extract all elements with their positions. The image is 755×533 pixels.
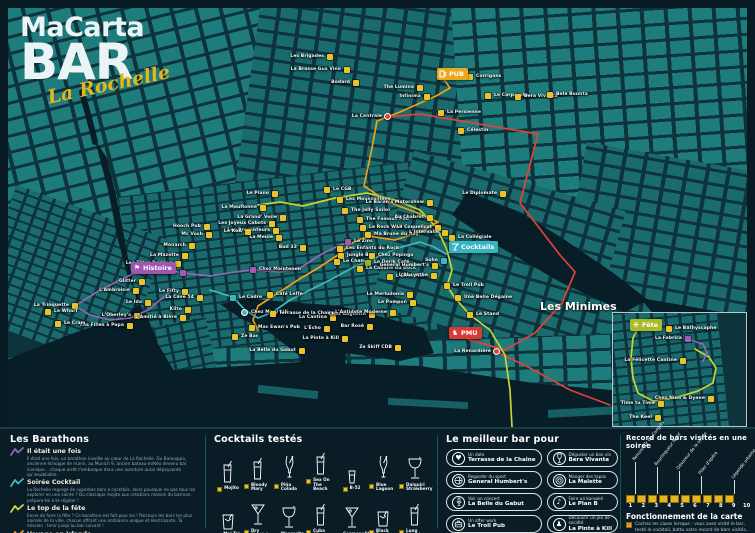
bar-dot [427,200,433,206]
bar-label: Chez Popingo [378,253,414,258]
best-bar-title: Le meilleur bar pour [446,434,614,445]
bar-label: Les Enfants du Rock [346,246,399,251]
record-checkbox[interactable] [725,495,734,503]
coupe-glass-icon [407,457,423,481]
bar-dot [369,253,375,259]
bar-label: Les Brigades [290,54,324,59]
bar-dot [206,232,212,238]
best-bar-text: Faire un karaokéLe Plan B [569,497,604,508]
route-badge-cocktails: Cocktails [449,241,498,253]
bar-label: The Jolly Sailor [351,208,391,213]
bar-label: La Cantina [299,315,327,320]
martini-glass-icon [344,506,360,530]
bar-label: Le CGB [333,187,352,192]
best-bar-item: Un after workLe Troll Pub [446,515,542,533]
bar-label: Le KoA [224,229,242,234]
bar-dot [345,239,351,245]
cocktail-name-row: Piña Colada [274,483,304,492]
martini-glass-icon [250,503,266,527]
cocktails-title: Cocktails testés [214,434,430,445]
bar-dot [241,309,248,316]
cocktails-panel: Cocktails testés MojitoBloody MaryPiña C… [208,429,436,533]
record-checkbox[interactable] [626,495,635,503]
bar-label: La Belle du Gabut [249,348,296,353]
bar-label: Le Cadre [239,295,262,300]
bar-label: Le Fifty [159,289,179,294]
best-bar-panel: Le meilleur bar pour ♥Un dateTerrasse de… [440,429,620,533]
how-to-section: Fonctionnement de la carte ✓ Cochez les … [626,512,753,533]
cocktail-name: B-52 [350,486,361,491]
best-bar-grid: ♥Un dateTerrasse de la ChaîneDéguster un… [446,449,614,533]
bar-label: Le Corporate [494,93,528,98]
cocktail-name-row: Dry Martini [244,529,272,533]
route-badge-histoire: ⚑Histoire [131,262,176,274]
bar-dot [133,288,139,294]
bar-label: La Grand' Voile [237,215,277,220]
bar-dot [417,85,423,91]
bar-label: L'Écho [304,326,321,331]
bar-dot [230,295,236,301]
bar-dot [680,358,686,364]
cocktail-name-row: Black Russian [369,529,397,533]
barathons-title: Les Barathons [10,434,198,445]
bar-label: Le Cram [64,321,85,326]
bar-label: Café Leffe [276,292,303,297]
bar-dot [432,263,438,269]
record-number: 1 [626,503,635,509]
bar-label: Le Baron's Motorshow [366,200,424,205]
bar-dot [250,267,256,273]
bar-dot [444,283,450,289]
bar-dot [185,307,191,313]
bar-dot [232,334,238,340]
barathon-head: Le top de la fête [10,504,198,513]
cocktail-item: Mojito [214,448,242,492]
barathons-panel: Les Barathons Il était une foisIl était … [4,429,204,533]
best-bar-name: La Pinte à Kill [569,526,613,532]
barathon-description: La Rochelle regorge de superbes bars à c… [27,487,198,503]
best-bar-text: Déguster un bon vinBera Vivanta [569,453,612,464]
cocktail-name: Mojito [224,486,239,491]
tier-tick [701,476,702,495]
bar-dot [410,300,416,306]
record-number: 4 [665,503,674,509]
bar-label: Les Joyeux Cabots [218,221,266,226]
barathon-name: Il était une fois [27,448,81,455]
cocktail-name-row: Long Island [399,529,430,533]
badge-label: PUB [449,70,464,78]
bar-label: L'Oberley's [102,313,131,318]
inset-title: Les Minimes [540,300,617,313]
bar-dot [547,92,553,98]
best-bar-item: Déguster un bon vinBera Vivanta [547,449,619,467]
bar-label: La Brasse Gus Vino [291,67,341,72]
bar-label: Le Diplomate [462,191,497,196]
tapas-icon [553,474,566,487]
cocktail-name-row: Bloody Mary [244,483,272,492]
cocktail-item: Blue Lagoon [369,448,397,492]
bar-label: La Mazette [150,253,179,258]
cocktail-name-row: Blue Lagoon [369,483,397,492]
tier-label: Légende urbaine [731,448,755,480]
record-checkbox[interactable] [714,495,723,503]
best-bar-item: Voir un concertLa Belle du Gabut [446,493,542,511]
bar-dot [180,315,186,321]
best-bar-name: General Humbert's [468,479,527,485]
record-number: 7 [703,503,712,509]
bar-label: L'Intervalle [409,230,439,235]
record-number: 5 [678,503,687,509]
bar-dot [337,246,343,252]
shot-glass-icon [347,470,357,484]
bar-dot [324,326,330,332]
cocktails-grid: MojitoBloody MaryPiña ColadaSex On The B… [214,448,430,533]
tier-label: Pilier d'apéro [698,450,719,475]
record-checkbox[interactable] [637,495,646,503]
bar-label: La Collégiale [458,235,492,240]
bar-dot [442,230,448,236]
cocktail-name-row: Mojito [217,486,239,492]
best-bar-text: Découvrir un jeu de sociétéLa Pinte à Ki… [569,516,613,531]
hurricane-glass-icon [283,455,296,481]
bar-label: The Keel [629,415,652,420]
bar-dot [438,110,444,116]
cocktail-name: Dry Martini [251,529,272,533]
bar-label: Kilto [170,307,182,312]
highball-glass-icon [314,452,327,476]
cocktail-name: Long Island [406,529,430,533]
barathon-head: Soirée Cocktail [10,478,198,487]
bar-label: Le Zinc [354,239,373,244]
bar-dot [658,401,664,407]
bar-dot [299,348,305,354]
cocktail-name-row: Cuba Libre [306,529,334,533]
cocktail-checkbox[interactable] [306,479,311,484]
record-checkbox[interactable] [681,495,690,503]
record-number: 3 [652,503,661,509]
checked-box-icon: ✓ [626,522,632,528]
bar-dot [441,258,447,264]
bar-label: Le Troll Pub [453,283,484,288]
beer-mug-icon [439,70,447,78]
bar-dot [360,225,366,231]
barathon-description: Il était une fois, un barathon insolite … [27,456,198,477]
cocktail-checkbox[interactable] [244,484,249,489]
bar-label: La Fabrica [655,336,682,341]
bar-dot [390,310,396,316]
record-checkbox[interactable] [659,495,668,503]
coupe-glass-icon [281,506,297,530]
bar-dot [139,279,145,285]
best-bar-text: Voir un concertLa Belle du Gabut [468,497,524,508]
bar-dot [458,128,464,134]
best-bar-item: Manger des tapasLa Malette [547,471,619,489]
bar-label: Ze Skiff CDB [359,345,392,350]
bar-label: Bodard [331,80,350,85]
best-bar-name: Terrasse de la Chaîne [468,457,536,463]
best-bar-category: Découvrir un jeu de société [569,516,613,525]
record-checkboxes [626,495,753,503]
bar-label: Le Stand [476,312,499,317]
horse-icon: ♞ [451,329,459,337]
bar-label: Hooch Pub [173,224,201,229]
bar-dot [353,80,359,86]
cocktail-name-row: Daiquiri Strawberry [399,483,430,492]
cocktail-item: Dry Martini [244,494,272,533]
bar-dot [127,323,133,329]
badge-label: PMU [461,329,478,337]
cocktail-name: Black Russian [376,529,397,533]
bar-label: Mac Ewan's Pub [258,325,300,330]
bar-label: Mc Vosh [181,232,203,237]
heart-icon: ♥ [452,452,465,465]
macarta-bar-poster: Les BrigadesLa Brasse Gus VinoBodardThe … [0,0,755,533]
bar-label: La Félicette Cantine [624,358,677,363]
cocktail-name-row: B-52 [343,486,361,492]
badge-label: Fête [642,321,658,329]
route-badge-fête: ❉Fête [630,319,662,331]
bar-label: La Cave 54 [165,295,194,300]
microphone-icon [452,496,465,509]
bar-dot [204,224,210,230]
best-bar-text: Manger des tapasLa Malette [569,475,606,486]
bar-dot [197,295,203,301]
tier-tick [679,471,680,494]
record-checkbox[interactable] [692,495,701,503]
bar-dot [245,229,251,235]
bar-dot [357,217,363,223]
cocktail-item: Sex On The Beach [306,448,334,492]
bar-label: Une Belle Dégaine [464,295,512,300]
bar-label: Chez Maintenon [259,267,301,272]
bar-dot [395,345,401,351]
legend-separator [620,435,621,529]
record-checkbox[interactable] [670,495,679,503]
best-bar-name: La Malette [569,479,606,485]
bar-label: The Lumina [384,85,414,90]
record-number: 10 [742,503,751,509]
best-bar-name: La Belle du Gabut [468,501,524,507]
bar-dot [280,215,286,221]
route-zigzag-icon [10,504,24,513]
highball-glass-icon [314,503,327,527]
bar-label: Infinima [399,94,421,99]
record-checkbox[interactable] [648,495,657,503]
bar-dot [493,348,500,355]
record-numbers: 12345678910 [626,503,753,509]
bar-label: Bar Rosé [341,324,364,329]
barathon-description: Envie de faire la fête ? Ce barathon est… [27,513,198,529]
bar-label: La Renardière [454,349,491,354]
poster-logo: MaCarta BAR La Rochelle [20,14,171,108]
bar-dot [276,235,282,241]
tier-tick [734,480,735,494]
bar-dot [189,243,195,249]
barathon-item: Voyage en IrlandePlonge dans un barathon… [10,530,198,533]
bar-dot [427,215,433,221]
wine-glass-icon [553,452,566,465]
record-number: 9 [729,503,738,509]
bar-label: Le Pompon [378,300,407,305]
game-pawn-icon: ♟ [553,518,566,531]
sport-ball-icon [452,474,465,487]
bar-dot [467,312,473,318]
bar-dot [455,295,461,301]
bar-dot [267,292,273,298]
route-zigzag-icon [10,478,24,487]
bar-dot [55,321,61,327]
cocktail-name: Sex On The Beach [313,478,334,492]
tier-tick [635,462,636,494]
cocktail-item: B-52 [336,448,367,492]
legend-separator [205,435,206,529]
cocktail-item: Piña Colada [274,448,304,492]
bar-dot [365,232,371,238]
city-map: Les BrigadesLa Brasse Gus VinoBodardThe … [8,8,747,427]
cocktail-checkbox[interactable] [369,484,374,489]
les-minimes-inset: Le BathyscapheLa FabricaLa Félicette Can… [612,312,747,427]
bar-label: Bela Bounta [556,92,588,97]
bar-dot [272,191,278,197]
how-to-text: Cochez les cases lorsque : vous avez vis… [635,522,753,533]
record-number: 8 [716,503,725,509]
barathon-head: Il était une fois [10,447,198,456]
cocktail-item: Long Island [399,494,430,533]
cocktail-name: Cuba Libre [313,529,334,533]
cocktail-item: Black Russian [369,494,397,533]
bar-label: Célestin [467,128,488,133]
bar-dot [515,94,521,100]
bar-dot [384,113,391,120]
cocktail-name: Piña Colada [281,483,304,492]
bar-dot [708,396,714,402]
route-zigzag-icon [10,530,24,533]
bar-dot [500,191,506,197]
bar-dot [182,253,188,259]
legend-separator [437,435,438,529]
bar-dot [424,94,430,100]
best-bar-text: Un dateTerrasse de la Chaîne [468,453,536,464]
bar-dot [273,228,279,234]
bar-label: Ze Bar [241,334,258,339]
tier-tick [657,467,658,495]
cocktail-checkbox[interactable] [274,484,279,489]
bar-dot [655,415,661,421]
bar-label: Glitter [119,279,136,284]
best-bar-item: Regarder du sportGeneral Humbert's [446,471,542,489]
barathon-item: Le top de la fêteEnvie de faire la fête … [10,504,198,529]
cocktail-checkbox[interactable] [343,487,348,492]
bar-label: General Humbert's [380,263,429,268]
best-bar-item: ♟Découvrir un jeu de sociétéLa Pinte à K… [547,515,619,533]
barathon-name: Le top de la fête [27,505,85,512]
bar-dot [685,336,691,342]
route-zigzag-icon [10,447,24,456]
bar-label: L'Ambroisie [99,288,130,293]
bar-dot [337,197,343,203]
cocktail-name: Blue Lagoon [376,483,397,492]
bar-label: La Centrale [352,114,382,119]
cocktail-item: Daiquiri Strawberry [399,448,430,492]
bar-dot [180,270,186,276]
best-bar-text: Regarder du sportGeneral Humbert's [468,475,527,486]
rocks-glass-icon [221,513,235,530]
bar-dot [249,325,255,331]
route-badge-pmu: ♞PMU [449,327,482,339]
bar-label: L'Amitié à Bière [135,315,177,320]
bar-dot [431,273,437,279]
party-icon: ❉ [632,321,640,329]
hurricane-glass-icon [377,455,390,481]
bar-label: Le Piano [247,191,269,196]
bar-dot [269,221,275,227]
cocktail-checkbox[interactable] [399,484,404,489]
bar-dot [342,208,348,214]
bar-label: Le Cham [343,259,365,264]
bar-dot [666,326,672,332]
bar-dot [270,311,276,317]
route-badge-pub: PUB [437,68,468,80]
cocktail-item: Cuba Libre [306,494,334,533]
cocktail-name: Daiquiri Strawberry [406,483,430,492]
cocktail-name: Bloody Mary [251,483,272,492]
bar-label: Les Filles à Papa [80,323,124,328]
best-bar-text: Un after workLe Troll Pub [468,519,505,530]
record-tier-labels: Renonceur du CongrèsBourlingueur festifD… [626,452,753,494]
record-panel: Record de bars visités en une soirée Ren… [622,429,755,533]
bar-label: Monarch [163,243,186,248]
bar-dot [324,187,330,193]
cocktail-icon [451,243,459,251]
cocktail-checkbox[interactable] [217,487,222,492]
barathon-item: Soirée CocktailLa Rochelle regorge de su… [10,478,198,503]
bar-label: Bud 33 [279,245,297,250]
cocktail-item: Margarita [274,494,304,533]
flag-icon: ⚑ [133,264,141,272]
best-bar-item: ♪Faire un karaokéLe Plan B [547,493,619,511]
bar-label: Le Bathyscaphe [675,326,717,331]
bar-dot [300,245,306,251]
record-number: 6 [691,503,700,509]
bar-dot [344,67,350,73]
best-bar-name: Le Troll Pub [468,523,505,529]
music-note-icon: ♪ [553,496,566,509]
best-bar-name: Bera Vivanta [569,457,612,463]
bar-label: Corrigans [476,74,501,79]
bar-dot [45,309,51,315]
bar-label: La Mouflonne [222,205,258,210]
bar-label: L'Antidote Moderne [335,310,387,315]
bar-label: La Trinquette [34,303,69,308]
rocks-glass-icon [376,510,390,527]
legend-strip: Les Barathons Il était une foisIl était … [0,427,755,533]
briefcase-icon [452,518,465,531]
bar-dot [334,259,340,265]
bar-label: L'Absynthe [399,273,428,278]
record-checkbox[interactable] [703,495,712,503]
cocktail-item: Bloody Mary [244,448,272,492]
best-bar-item: ♥Un dateTerrasse de la Chaîne [446,449,542,467]
how-to-title: Fonctionnement de la carte [626,512,753,521]
highball-glass-icon [408,503,421,527]
record-number: 2 [639,503,648,509]
bar-label: La Meule [249,235,273,240]
bar-dot [387,274,393,280]
cocktail-name-row: Sex On The Beach [306,478,334,492]
bar-label: Time to Time [621,401,655,406]
bar-label: La Pinte à Kill [302,336,339,341]
cocktail-item: Mai Tai [214,494,242,533]
